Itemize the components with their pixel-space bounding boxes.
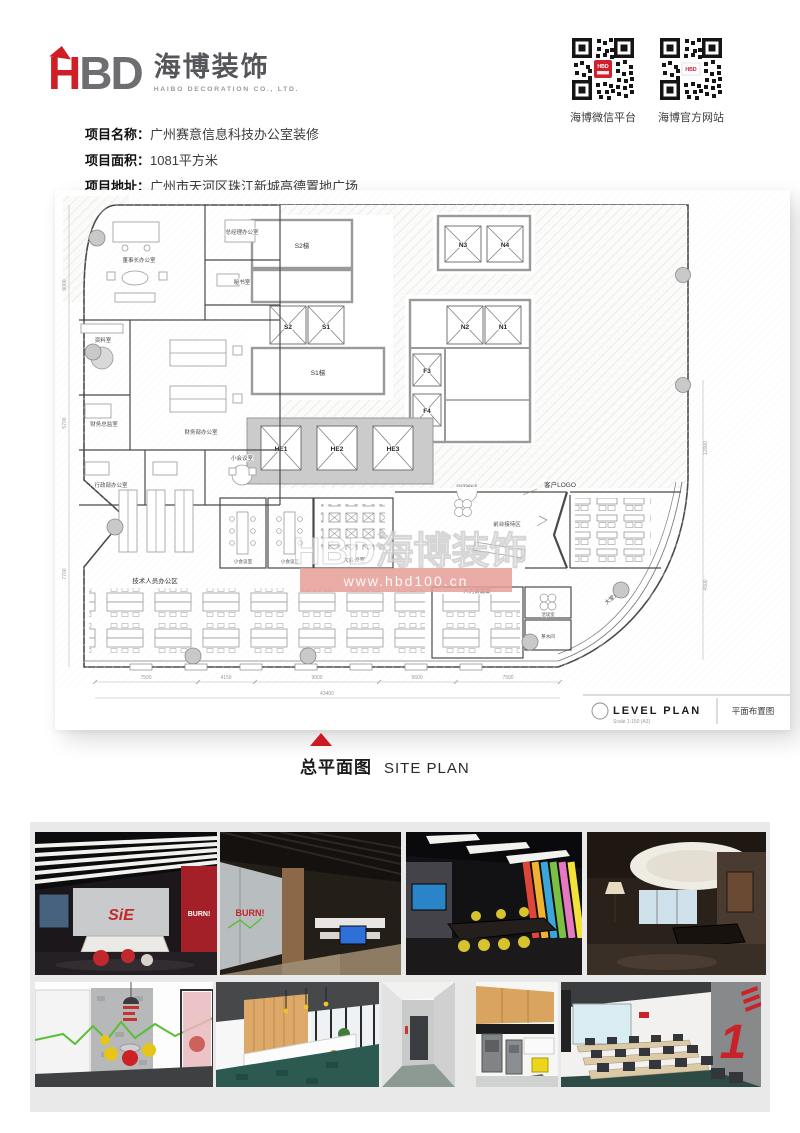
core-south: S2梯 S1梯 S2 S1 [247,215,393,400]
title-block: LEVEL PLAN Scale 1:150 (A3) 平面布置图 [583,695,790,725]
qr-website: HBD 海博官方网站 [656,38,726,125]
qr-website-icon: HBD [660,38,722,100]
svg-text:HE2: HE2 [331,446,344,453]
svg-text:洽谈室: 洽谈室 [541,611,555,618]
svg-text:HE3: HE3 [387,446,400,453]
svg-text:N1: N1 [499,324,508,331]
project-name-label: 项目名称： [85,127,150,142]
svg-text:F4: F4 [423,408,431,415]
svg-text:5700: 5700 [62,417,68,428]
svg-text:ENTRANCE: ENTRANCE [457,484,478,488]
svg-text:BURN!: BURN! [236,908,265,918]
renderings-gallery: SiE BURN! BURN! [30,822,770,1112]
svg-text:客户LOGO: 客户LOGO [544,480,576,489]
section-title-en: SITE PLAN [384,760,470,777]
qr-wechat-icon: HBD [572,38,634,100]
svg-text:4500: 4500 [703,579,709,590]
svg-text:7700: 7700 [62,568,68,579]
project-area-row: 项目面积：1081平方米 [85,150,358,169]
svg-text:S1梯: S1梯 [311,368,326,377]
sketch-corridor[interactable] [382,982,455,1087]
logo-chinese-name: 海博装饰 [154,53,300,83]
svg-text:资料室: 资料室 [95,336,112,344]
page: HBD 海博装饰 HAIBO DECORATION CO., LTD. HBD … [0,0,800,1133]
svg-text:7500: 7500 [140,675,151,681]
svg-text:N3: N3 [459,242,468,249]
sketch-pantry-appliances[interactable] [458,982,558,1087]
svg-text:43400: 43400 [320,691,334,697]
svg-text:S2: S2 [284,324,292,331]
project-area-value: 1081平方米 [150,153,218,168]
core-he-bank: HE1 HE2 HE3 [247,418,433,484]
svg-text:9000: 9000 [311,675,322,681]
svg-text:12000: 12000 [703,441,709,455]
svg-text:总经理办公室: 总经理办公室 [225,228,259,236]
photo-meeting-room-render[interactable] [406,832,582,975]
logo-letters-bd: BD [79,47,141,99]
sketch-training-room[interactable]: 1 [561,982,761,1087]
svg-text:小会议室: 小会议室 [231,454,254,462]
svg-text:HBD: HBD [597,64,608,70]
floor-plan-sheet: S2梯 S1梯 S2 S1 N3 N4 [55,190,790,730]
section-marker-triangle-icon [310,733,332,746]
company-logo: HBD 海博装饰 HAIBO DECORATION CO., LTD. [48,50,299,96]
watermark: HBD海博装饰 www.hbd100.cn [293,531,527,592]
svg-text:BURN!: BURN! [188,911,211,918]
svg-text:HBD: HBD [685,67,696,73]
svg-text:行政部办公室: 行政部办公室 [94,481,128,489]
qr-website-label: 海博官方网站 [656,109,726,125]
qr-wechat-label: 海博微信平台 [568,109,638,125]
floor-plan-drawing: S2梯 S1梯 S2 S1 N3 N4 [55,190,790,730]
svg-text:秘书室: 秘书室 [234,278,251,286]
project-name-row: 项目名称：广州赛意信息科技办公室装修 [85,124,358,143]
svg-text:LEVEL PLAN: LEVEL PLAN [613,705,701,717]
svg-text:4150: 4150 [220,675,231,681]
svg-text:财务部办公室: 财务部办公室 [184,428,218,436]
sketch-discussion-room[interactable] [35,982,213,1087]
svg-text:茶水间: 茶水间 [541,633,555,640]
svg-text:N2: N2 [461,324,470,331]
project-name-value: 广州赛意信息科技办公室装修 [150,127,319,142]
svg-text:7500: 7500 [502,675,513,681]
svg-text:平面布置图: 平面布置图 [732,706,775,716]
svg-text:S2梯: S2梯 [295,241,310,250]
photo-executive-office-render[interactable] [587,832,766,975]
project-area-label: 项目面积： [85,153,150,168]
svg-text:董事长办公室: 董事长办公室 [122,256,156,264]
svg-text:9000: 9000 [62,279,68,290]
logo-english-name: HAIBO DECORATION CO., LTD. [154,86,300,93]
svg-text:N4: N4 [501,242,510,249]
svg-text:F3: F3 [423,368,431,375]
svg-text:www.hbd100.cn: www.hbd100.cn [343,573,469,589]
section-title: 总平面图SITE PLAN [300,753,470,778]
photo-office-corridor-render[interactable]: BURN! [220,832,401,975]
section-title-cn: 总平面图 [300,758,372,777]
svg-text:HBD海博装饰: HBD海博装饰 [293,531,527,573]
svg-text:技术人员办公区: 技术人员办公区 [132,576,178,585]
sketch-pantry-bar[interactable] [216,982,379,1087]
svg-text:财务总监室: 财务总监室 [90,420,118,428]
photo-reception-render[interactable]: SiE BURN! [35,832,217,975]
svg-text:1: 1 [720,1016,747,1069]
qr-wechat: HBD 海博微信平台 [568,38,638,125]
svg-text:Scale 1:150 (A3): Scale 1:150 (A3) [613,719,651,725]
svg-text:前台接待区: 前台接待区 [493,520,521,528]
svg-text:5600: 5600 [411,675,422,681]
svg-text:小会议室: 小会议室 [234,558,253,565]
svg-text:SiE: SiE [108,907,135,924]
svg-text:S1: S1 [322,324,330,331]
